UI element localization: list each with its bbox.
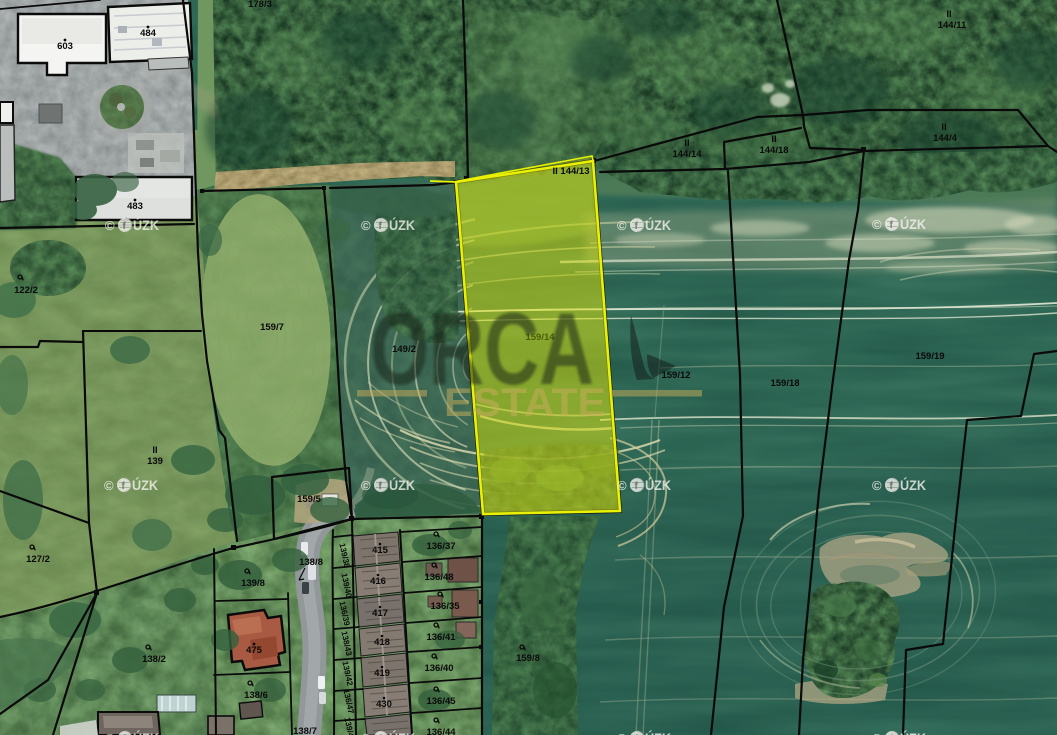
svg-text:138/6: 138/6 — [244, 690, 268, 701]
svg-text:139: 139 — [147, 456, 163, 467]
svg-text:159/8: 159/8 — [516, 653, 540, 664]
svg-text:475: 475 — [246, 645, 263, 656]
svg-text:417: 417 — [372, 608, 388, 619]
svg-text:144/18: 144/18 — [759, 145, 788, 156]
svg-text:159/18: 159/18 — [770, 378, 799, 389]
svg-text:159/7: 159/7 — [260, 322, 284, 333]
svg-text:II: II — [684, 138, 689, 149]
svg-text:136/48: 136/48 — [424, 572, 453, 583]
svg-text:484: 484 — [140, 28, 157, 39]
svg-text:159/19: 159/19 — [915, 351, 944, 362]
svg-text:430: 430 — [376, 699, 392, 710]
svg-text:144/11: 144/11 — [938, 20, 967, 31]
svg-text:122/2: 122/2 — [14, 285, 38, 296]
svg-text:138/8: 138/8 — [299, 557, 323, 568]
svg-text:II 144/13: II 144/13 — [553, 166, 590, 177]
svg-text:136/35: 136/35 — [430, 601, 460, 612]
svg-text:418: 418 — [374, 637, 390, 648]
svg-text:ESTATE: ESTATE — [444, 381, 606, 425]
svg-text:159/12: 159/12 — [661, 370, 690, 381]
svg-text:136/41: 136/41 — [426, 632, 456, 643]
svg-text:603: 603 — [57, 41, 73, 52]
svg-text:II: II — [152, 445, 157, 456]
svg-text:II: II — [946, 9, 951, 20]
svg-text:419: 419 — [374, 668, 390, 679]
svg-text:139/8: 139/8 — [241, 578, 265, 589]
svg-text:II: II — [771, 134, 776, 145]
svg-text:144/14: 144/14 — [672, 149, 702, 160]
svg-text:II: II — [941, 122, 946, 133]
svg-text:416: 416 — [370, 576, 386, 587]
svg-text:136/40: 136/40 — [424, 663, 453, 674]
svg-text:127/2: 127/2 — [26, 554, 50, 565]
svg-text:136/45: 136/45 — [426, 696, 456, 707]
svg-text:138/2: 138/2 — [142, 654, 166, 665]
svg-text:178/3: 178/3 — [248, 0, 272, 10]
svg-text:144/4: 144/4 — [933, 133, 957, 144]
svg-text:138/7: 138/7 — [293, 726, 317, 735]
svg-text:159/5: 159/5 — [297, 494, 321, 505]
svg-text:136/37: 136/37 — [426, 541, 455, 552]
svg-text:483: 483 — [127, 201, 143, 212]
svg-text:136/44: 136/44 — [426, 727, 456, 735]
svg-text:415: 415 — [372, 545, 389, 556]
